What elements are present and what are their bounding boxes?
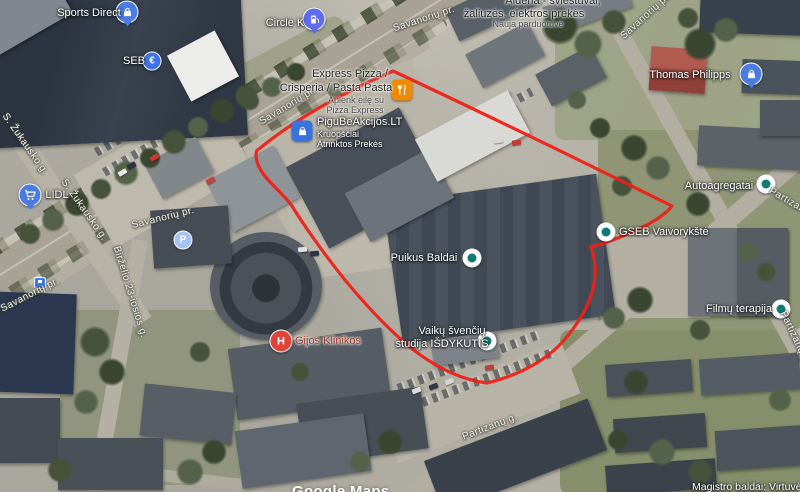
tree xyxy=(73,389,99,415)
shopping-bag-icon xyxy=(121,6,133,18)
tree xyxy=(589,117,611,139)
poi-sublabel-express-pizza-2: Pizza Express xyxy=(326,105,383,115)
building xyxy=(0,398,60,463)
tree xyxy=(90,178,112,200)
poi-label-filmu-terapija[interactable]: Filmų terapija xyxy=(706,303,772,315)
tree xyxy=(349,451,371,473)
poi-label-vaiku-2[interactable]: studija IŠDYKUTIS xyxy=(396,338,489,350)
thomas-philipps-pin[interactable] xyxy=(740,63,763,86)
tree xyxy=(683,27,717,61)
poi-label-circle-k[interactable]: Circle K xyxy=(266,17,305,29)
building xyxy=(235,413,372,489)
poi-label-express-pizza-1[interactable]: Express Pizza / xyxy=(312,68,388,80)
poi-label-gijos-klinikos[interactable]: Gijos Klinikos xyxy=(295,335,361,347)
poi-label-thomas-philipps[interactable]: Thomas Philipps xyxy=(649,69,730,81)
tree xyxy=(611,175,633,197)
building xyxy=(760,100,800,136)
google-watermark: Google Maps xyxy=(292,483,389,492)
tree xyxy=(189,341,211,363)
tree xyxy=(377,429,403,455)
puikus-baldai-pin[interactable] xyxy=(463,249,482,268)
tree xyxy=(79,326,111,358)
shopping-bag-icon xyxy=(745,68,757,80)
tree xyxy=(41,208,65,232)
tree xyxy=(209,98,235,124)
pigu-pin[interactable] xyxy=(292,121,313,142)
car xyxy=(298,247,307,253)
poi-label-magistro[interactable]: Magistro baldai: Virtuvės xyxy=(692,481,800,492)
lidl-pin[interactable] xyxy=(19,184,42,207)
tree xyxy=(602,306,626,330)
express-pizza-pin[interactable] xyxy=(392,80,413,101)
tree xyxy=(607,429,629,451)
building xyxy=(715,425,800,471)
tree xyxy=(620,134,647,161)
building xyxy=(140,383,237,444)
tree xyxy=(737,241,759,263)
poi-sublabel-express-pizza-1: Aplenk eilę su xyxy=(328,95,384,105)
tree xyxy=(677,7,699,29)
poi-label-express-pizza-2[interactable]: Crisperia / Pasta Pasta xyxy=(280,82,393,94)
poi-label-pigu[interactable]: PiguBeAkcijos.LT xyxy=(317,116,402,128)
restaurant-icon xyxy=(396,84,409,97)
map-canvas[interactable]: Savanorių pr. Savanorių pr. Savanorių pr… xyxy=(0,0,800,492)
tree xyxy=(623,369,649,395)
euro-icon: € xyxy=(149,56,155,67)
building xyxy=(58,438,163,490)
tree xyxy=(19,223,41,245)
hospital-h-icon: H xyxy=(277,335,285,347)
parking-pin[interactable]: P xyxy=(174,231,193,250)
tree xyxy=(645,155,671,181)
tree xyxy=(201,439,227,465)
parking-p-icon: P xyxy=(180,235,187,246)
shopping-bag-icon xyxy=(296,125,308,137)
tree xyxy=(685,191,711,217)
tree xyxy=(187,116,209,138)
tree xyxy=(626,286,653,313)
poi-label-vaiku-1[interactable]: Vaikų švenčių xyxy=(418,325,485,337)
tree xyxy=(713,17,739,43)
gseb-pin[interactable] xyxy=(597,223,616,242)
fuel-pump-icon xyxy=(308,13,320,25)
poi-label-puikus-baldai[interactable]: Puikus Baldai xyxy=(391,252,458,264)
poi-label-lidl[interactable]: LIDL xyxy=(45,189,68,201)
tree xyxy=(161,129,187,155)
poi-label-seb[interactable]: SEB xyxy=(123,55,145,67)
car xyxy=(512,139,522,145)
poi-sublabel-pigu-1: Kruopščiai xyxy=(317,129,359,139)
poi-label-aldena-1[interactable]: Aldena - šviestuvai, xyxy=(505,0,600,7)
building xyxy=(605,359,693,397)
tree xyxy=(768,388,792,412)
shopping-cart-icon xyxy=(24,189,37,202)
poi-label-autoagregatai[interactable]: Autoagregatai xyxy=(685,180,754,192)
tree xyxy=(689,319,711,341)
car xyxy=(310,251,319,257)
tree xyxy=(47,457,73,483)
hospital-pin[interactable]: H xyxy=(270,330,293,353)
poi-sublabel-pigu-2: Atrinktos Prekės xyxy=(317,139,383,149)
circle-k-pin[interactable] xyxy=(303,8,326,31)
seb-pin[interactable]: € xyxy=(143,52,162,71)
poi-sublabel-aldena: Nauja parduotuvė xyxy=(492,19,563,29)
poi-label-sports-direct[interactable]: Sports Direct xyxy=(57,7,121,19)
poi-label-gseb[interactable]: GSEB Vaivorykštė xyxy=(619,226,709,238)
